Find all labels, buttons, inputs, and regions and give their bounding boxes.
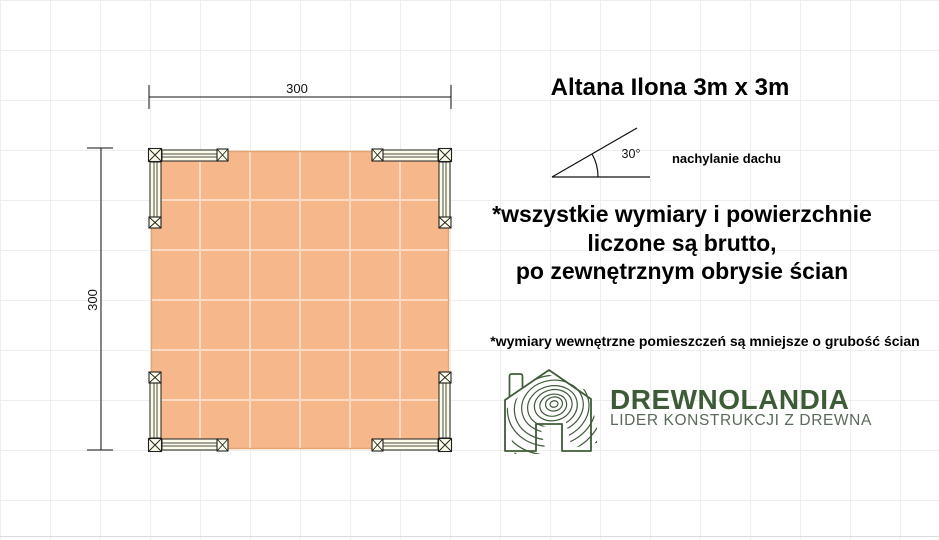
canvas: 300 300 Altana Ilona 3m x 3m 30° nachyla…: [0, 0, 939, 540]
gross-dimensions-note-line-3: po zewnętrznym obrysie ścian: [462, 257, 902, 286]
logo-tagline-text: LIDER KONSTRUKCJI Z DREWNA: [610, 413, 872, 429]
left-dimension-line: 300: [85, 148, 113, 450]
roof-pitch-angle-arc: [592, 154, 598, 177]
gross-dimensions-note: *wszystkie wymiary i powierzchnie liczon…: [462, 200, 902, 286]
wood-rings-house-icon: [501, 368, 597, 454]
roof-pitch-caption: nachylanie dachu: [664, 151, 789, 166]
width-dimension-label: 300: [286, 81, 308, 96]
floor: [152, 152, 449, 449]
roof-pitch-diagram: 30°: [535, 112, 667, 184]
bottom-edge-divider: [0, 536, 939, 537]
drawing-title: Altana Ilona 3m x 3m: [460, 74, 880, 102]
height-dimension-label: 300: [85, 289, 100, 311]
gross-dimensions-note-line-1: *wszystkie wymiary i powierzchnie: [462, 200, 902, 229]
logo-brand-text: DREWNOLANDIA: [610, 386, 849, 414]
roof-angle-label: 30°: [622, 147, 641, 161]
top-dimension-line: 300: [149, 81, 451, 109]
gross-dimensions-note-line-2: liczone są brutto,: [462, 229, 902, 258]
internal-dimensions-note: *wymiary wewnętrzne pomieszczeń są mniej…: [480, 333, 930, 349]
